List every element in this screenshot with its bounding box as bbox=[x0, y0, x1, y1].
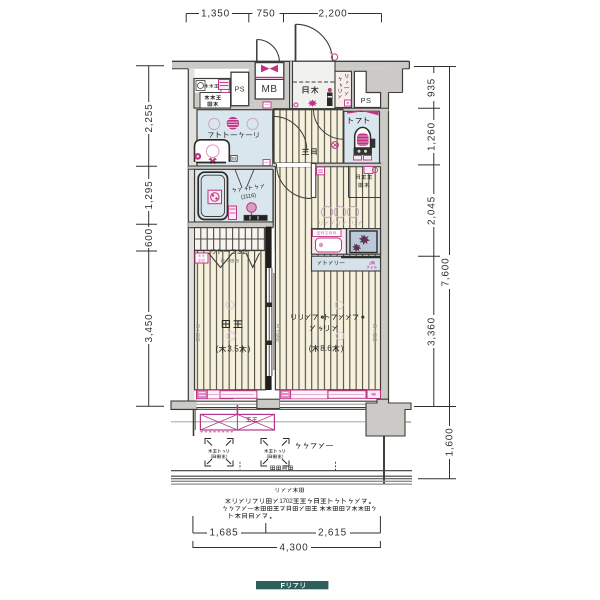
svg-text:2,255: 2,255 bbox=[144, 103, 155, 132]
svg-text:F: F bbox=[281, 581, 286, 590]
svg-text:M: M bbox=[232, 156, 236, 161]
svg-text:3.5: 3.5 bbox=[227, 345, 239, 354]
svg-text:600: 600 bbox=[144, 228, 155, 247]
svg-text:PS: PS bbox=[360, 96, 371, 105]
svg-text:935: 935 bbox=[427, 78, 438, 97]
svg-text:3,360: 3,360 bbox=[427, 317, 438, 346]
svg-text:750: 750 bbox=[256, 9, 275, 20]
svg-text:8.6: 8.6 bbox=[320, 344, 332, 353]
svg-text:): ) bbox=[248, 345, 251, 354]
svg-text:1,260: 1,260 bbox=[427, 122, 438, 151]
svg-text:PS: PS bbox=[235, 84, 246, 93]
svg-text:2,045: 2,045 bbox=[427, 196, 438, 225]
svg-text:1,350: 1,350 bbox=[201, 9, 230, 20]
svg-text:2,615: 2,615 bbox=[318, 528, 347, 539]
svg-text:): ) bbox=[341, 344, 344, 353]
svg-text:2,200: 2,200 bbox=[318, 9, 347, 20]
svg-text:4,300: 4,300 bbox=[279, 543, 308, 554]
svg-text:(: ( bbox=[216, 345, 219, 354]
svg-text:MB: MB bbox=[262, 84, 278, 95]
svg-text:3,450: 3,450 bbox=[144, 313, 155, 342]
svg-text:MW: MW bbox=[372, 391, 377, 396]
svg-text:1,685: 1,685 bbox=[209, 528, 238, 539]
svg-text:1702: 1702 bbox=[279, 498, 293, 505]
svg-text:7,600: 7,600 bbox=[441, 257, 452, 286]
svg-text:1,295: 1,295 bbox=[144, 180, 155, 209]
svg-text:1,600: 1,600 bbox=[445, 427, 456, 456]
svg-text:(: ( bbox=[309, 344, 312, 353]
